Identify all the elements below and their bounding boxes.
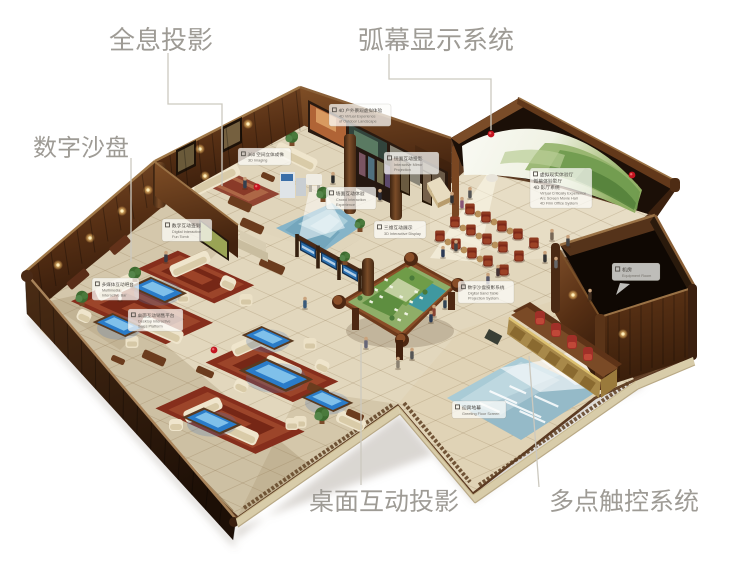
svg-text:Experience: Experience [336, 203, 355, 207]
svg-text:Interactive Mirror: Interactive Mirror [394, 163, 423, 167]
svg-text:of Outdoor Landscape: of Outdoor Landscape [339, 120, 377, 124]
svg-text:Projection System: Projection System [468, 297, 499, 301]
svg-text:3D Interactive Display: 3D Interactive Display [384, 232, 421, 236]
svg-text:3D Imaging: 3D Imaging [248, 159, 267, 163]
svg-text:Digital Interactive: Digital Interactive [172, 230, 201, 234]
svg-text:Desktop Interactive: Desktop Interactive [138, 320, 171, 324]
svg-text:Projection: Projection [394, 168, 411, 172]
svg-text:Digital Sand Table: Digital Sand Table [468, 292, 499, 296]
svg-text:Sales Platform: Sales Platform [138, 325, 163, 329]
svg-text:Crowd Interaction: Crowd Interaction [336, 198, 366, 202]
svg-text:Equipment Room: Equipment Room [622, 274, 651, 278]
svg-text:Greeting Floor Screen: Greeting Floor Screen [462, 412, 499, 416]
svg-text:Virtual Critically Experience: Virtual Critically Experience [540, 192, 586, 196]
svg-text:4D Virtual Experience: 4D Virtual Experience [339, 115, 376, 119]
svg-text:Multimedia: Multimedia [102, 289, 121, 293]
svg-text:4D Film Office System: 4D Film Office System [540, 202, 578, 206]
svg-text:Arc Screen Movie Hall: Arc Screen Movie Hall [540, 197, 578, 201]
svg-text:Interactive Bar: Interactive Bar [102, 294, 127, 298]
svg-text:Fun Tomb: Fun Tomb [172, 235, 189, 239]
